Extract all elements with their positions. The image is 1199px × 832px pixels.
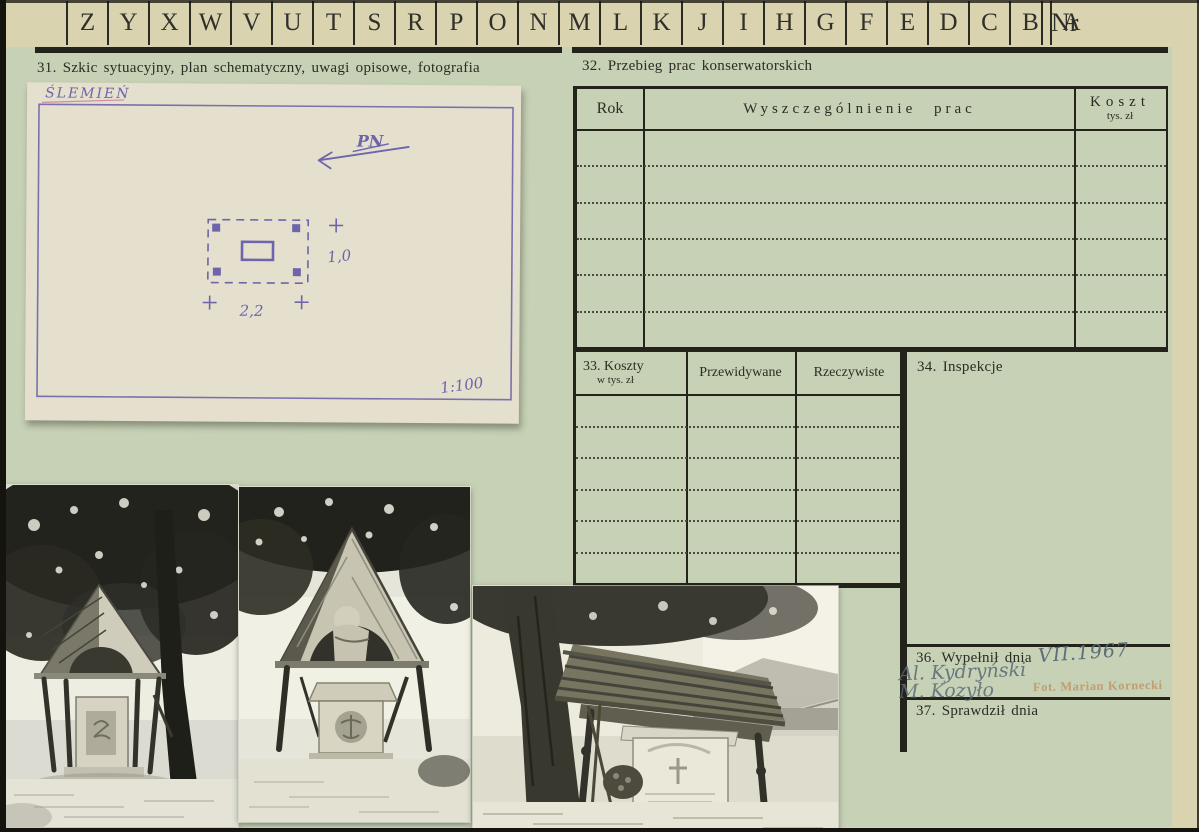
section-37-title: 37. Sprawdził dnia (916, 703, 1038, 720)
header-rule-left (35, 47, 562, 53)
works-col-cost-unit: tys. zł (1107, 111, 1133, 123)
conservation-record-card: ZYXWVUTSRPONMLKJIHGFEDCBA Nr 31. Szkic s… (0, 0, 1199, 832)
scan-edge-left (0, 0, 6, 832)
table-row (576, 428, 903, 460)
plan-post-sw (213, 268, 221, 276)
plan-post-nw (212, 224, 220, 232)
works-col-cost: Koszt tys. zł (1076, 89, 1164, 129)
works-col-year: Rok (577, 89, 643, 129)
scan-edge-bottom (0, 828, 1199, 832)
tab-letter: G (804, 1, 845, 45)
table-row (576, 396, 903, 428)
plan-post-se (293, 268, 301, 276)
tab-letter: L (599, 1, 640, 45)
section-32-title: 32. Przebieg prac konserwatorskich (582, 58, 812, 75)
sketch-scale-label: 1:100 (439, 374, 485, 398)
costs-title-unit: w tys. zł (583, 375, 686, 387)
costs-col-expected: Przewidywane (686, 352, 795, 394)
works-col-cost-label: Koszt (1090, 95, 1150, 111)
photo-shrine-front-image (4, 485, 238, 827)
tab-letter: C (968, 1, 1009, 45)
table-row (577, 240, 1166, 276)
tab-letter: O (476, 1, 517, 45)
alphabet-tab-strip: ZYXWVUTSRPONMLKJIHGFEDCBA (66, 0, 1091, 46)
table-row (576, 459, 903, 491)
sketch-border (37, 104, 513, 399)
photo-shrine-front (4, 485, 238, 827)
tab-letter: W (189, 1, 230, 45)
dim-right-label: 1,0 (327, 246, 353, 266)
tab-nr: Nr (1041, 1, 1127, 45)
table-row (577, 131, 1166, 167)
photo-credit-stamp: Fot. Marian Kornecki (1033, 678, 1163, 695)
site-sketch-drawing: ŚLEMIEŃ PN 1,0 2,2 1:100 (25, 82, 521, 423)
photo-shrine-closeup (239, 487, 470, 822)
costs-table-rows (576, 396, 903, 583)
costs-title-label: 33. Koszty (583, 360, 686, 375)
tab-letter: D (927, 1, 968, 45)
costs-col-actual: Rzeczywiste (795, 352, 903, 394)
section-34-title: 34. Inspekcje (917, 359, 1003, 376)
tab-letter: U (271, 1, 312, 45)
photo-shrine-closeup-image (239, 487, 470, 822)
costs-table: 33. Koszty w tys. zł Przewidywane Rzeczy… (573, 352, 903, 588)
dim-bottom-label: 2,2 (239, 302, 264, 320)
tab-letter: R (394, 1, 435, 45)
tab-letter: P (435, 1, 476, 45)
plan-pedestal (242, 242, 273, 260)
table-row (577, 276, 1166, 312)
section-31-title: 31. Szkic sytuacyjny, plan schematyczny,… (37, 60, 480, 77)
table-row (576, 522, 903, 554)
photo-shrine-roadside-image (473, 586, 838, 832)
dim-tick-right-top (329, 218, 343, 232)
table-row (577, 313, 1166, 347)
tab-letter: I (722, 1, 763, 45)
dim-tick-bottom-left (203, 296, 217, 310)
table-row (576, 554, 903, 584)
table-row (576, 491, 903, 523)
scan-edge-top (0, 0, 1199, 3)
tab-letter: X (148, 1, 189, 45)
tab-letter: E (886, 1, 927, 45)
tab-letter: H (763, 1, 804, 45)
costs-col-title: 33. Koszty w tys. zł (576, 352, 686, 394)
works-table-header: Rok Wyszczególnienie prac Koszt tys. zł (577, 89, 1166, 131)
sketch-place-label: ŚLEMIEŃ (45, 83, 131, 102)
tab-letter: K (640, 1, 681, 45)
tab-letter: S (353, 1, 394, 45)
header-rule-right (572, 47, 1168, 53)
table-row (577, 204, 1166, 240)
works-col-description: Wyszczególnienie prac (645, 89, 1074, 129)
handwritten-signature-2: M. Kozyło (899, 679, 994, 703)
site-sketch-paper: ŚLEMIEŃ PN 1,0 2,2 1:100 (25, 82, 521, 423)
costs-table-header: 33. Koszty w tys. zł Przewidywane Rzeczy… (576, 352, 903, 396)
photo-shrine-roadside (473, 586, 838, 832)
tab-letter: T (312, 1, 353, 45)
table-row (577, 167, 1166, 203)
tab-letter: N (517, 1, 558, 45)
tab-letter: V (230, 1, 271, 45)
tab-letter: J (681, 1, 722, 45)
works-table: Rok Wyszczególnienie prac Koszt tys. zł (573, 86, 1168, 352)
tab-letter: Z (66, 1, 107, 45)
tab-letter: Y (107, 1, 148, 45)
tab-nr-label: Nr (1051, 8, 1078, 38)
works-table-rows (577, 131, 1166, 347)
tab-letter: M (558, 1, 599, 45)
dim-tick-bottom-right (295, 295, 309, 309)
plan-post-ne (292, 224, 300, 232)
tab-letter: F (845, 1, 886, 45)
